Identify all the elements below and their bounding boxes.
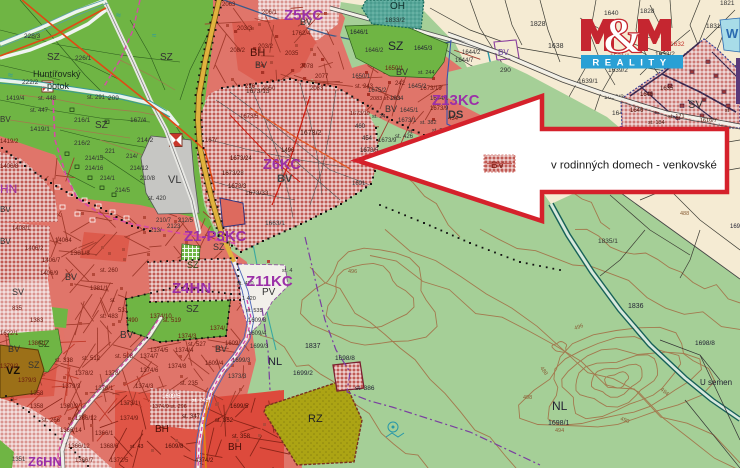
svg-text:BV: BV <box>120 330 134 341</box>
svg-text:1645/3: 1645/3 <box>414 46 433 52</box>
svg-text:1646: 1646 <box>640 92 654 98</box>
svg-text:BV: BV <box>0 205 11 214</box>
svg-text:REALITY: REALITY <box>592 58 671 69</box>
svg-text:488: 488 <box>680 211 689 217</box>
svg-text:Z13KC: Z13KC <box>432 92 480 109</box>
svg-text:st. 358: st. 358 <box>232 434 251 440</box>
svg-text:BV: BV <box>385 104 397 114</box>
svg-text:st. 338: st. 338 <box>55 358 74 364</box>
svg-text:1374/5: 1374/5 <box>150 348 169 354</box>
svg-text:221: 221 <box>105 149 116 155</box>
svg-text:1406/8: 1406/8 <box>0 164 19 170</box>
svg-text:1673/9: 1673/9 <box>378 138 397 144</box>
svg-text:RZ: RZ <box>308 413 323 425</box>
svg-text:W: W <box>726 26 739 41</box>
svg-text:st. 171: st. 171 <box>668 114 685 120</box>
svg-text:st. 386: st. 386 <box>355 385 375 392</box>
svg-text:st. 426: st. 426 <box>395 134 414 140</box>
svg-text:1831: 1831 <box>706 23 721 30</box>
svg-text:1374/3: 1374/3 <box>135 384 154 390</box>
svg-text:1646/1: 1646/1 <box>350 30 369 36</box>
svg-text:1381/1: 1381/1 <box>90 286 109 292</box>
svg-text:1673/5: 1673/5 <box>240 114 259 120</box>
svg-text:st. 527: st. 527 <box>188 342 207 348</box>
svg-text:st. 43: st. 43 <box>130 444 143 450</box>
svg-text:1366/7: 1366/7 <box>75 458 94 464</box>
svg-text:1835/1: 1835/1 <box>598 238 618 245</box>
svg-text:st. 24: st. 24 <box>372 114 385 120</box>
svg-text:1351: 1351 <box>12 457 26 463</box>
svg-text:1366/1: 1366/1 <box>95 431 114 437</box>
svg-text:1378/: 1378/ <box>105 371 120 377</box>
svg-text:1358: 1358 <box>30 404 44 410</box>
svg-text:460: 460 <box>355 124 366 130</box>
svg-text:BV: BV <box>277 173 293 185</box>
svg-text:SZ: SZ <box>388 39 403 53</box>
svg-text:226/1: 226/1 <box>75 55 92 62</box>
svg-text:st. 347: st. 347 <box>182 414 201 420</box>
svg-text:1379/2: 1379/2 <box>0 364 19 370</box>
svg-text:1698/8: 1698/8 <box>335 355 355 362</box>
svg-text:1645/1: 1645/1 <box>400 108 419 114</box>
svg-text:SZ: SZ <box>187 260 199 270</box>
svg-text:BH: BH <box>155 424 169 435</box>
svg-text:216/1: 216/1 <box>74 117 91 124</box>
svg-text:Z11KC: Z11KC <box>246 273 293 290</box>
svg-text:st. 508: st. 508 <box>115 354 134 360</box>
svg-text:1837: 1837 <box>305 343 321 350</box>
svg-text:1419/1: 1419/1 <box>30 126 50 133</box>
svg-text:1675/2: 1675/2 <box>368 88 387 94</box>
svg-text:SV: SV <box>12 287 24 297</box>
svg-text:Z6KC: Z6KC <box>263 157 301 173</box>
svg-text:1374/3: 1374/3 <box>178 334 197 340</box>
svg-text:214/12: 214/12 <box>130 166 149 172</box>
svg-text:st. 266: st. 266 <box>42 418 61 424</box>
svg-text:≈: ≈ <box>8 70 13 80</box>
svg-text:1673/1: 1673/1 <box>398 118 417 124</box>
svg-text:1496: 1496 <box>281 148 295 154</box>
svg-text:HN: HN <box>0 182 17 196</box>
svg-text:498: 498 <box>523 395 532 401</box>
svg-text:Z5KC: Z5KC <box>284 7 323 24</box>
svg-text:1374/7: 1374/7 <box>140 354 159 360</box>
svg-text:1699/3: 1699/3 <box>232 358 251 364</box>
svg-text:1698/8: 1698/8 <box>695 340 715 347</box>
svg-text:1616/7: 1616/7 <box>700 118 717 124</box>
svg-text:1408/1: 1408/1 <box>12 226 31 232</box>
svg-text:1698: 1698 <box>730 224 740 230</box>
svg-text:1378/1: 1378/1 <box>95 386 114 392</box>
svg-text:st. 244: st. 244 <box>418 70 435 76</box>
svg-text:214/5: 214/5 <box>115 188 131 194</box>
svg-text:Z4HN: Z4HN <box>172 280 211 297</box>
svg-text:1663/1: 1663/1 <box>265 220 285 227</box>
svg-text:1644/2: 1644/2 <box>462 50 481 56</box>
svg-text:1419/2: 1419/2 <box>0 139 19 145</box>
svg-text:1406/9: 1406/9 <box>40 271 59 277</box>
svg-text:1673/13: 1673/13 <box>246 88 270 95</box>
svg-text:1374/4: 1374/4 <box>175 348 194 354</box>
svg-text:st. 519: st. 519 <box>163 318 182 324</box>
svg-text:SZ: SZ <box>95 120 108 131</box>
svg-text:st. 447: st. 447 <box>30 108 49 114</box>
svg-text:1374/: 1374/ <box>210 326 225 332</box>
svg-text:209: 209 <box>108 95 119 102</box>
svg-text:496: 496 <box>348 269 357 275</box>
svg-text:1699/5: 1699/5 <box>230 404 249 410</box>
svg-text:1360/2: 1360/2 <box>60 404 79 410</box>
svg-text:1698/1: 1698/1 <box>548 420 570 427</box>
svg-text:1609/4: 1609/4 <box>248 331 267 337</box>
svg-text:st. 535: st. 535 <box>246 308 263 314</box>
svg-text:494: 494 <box>555 428 564 434</box>
svg-text:1366/14: 1366/14 <box>60 428 82 434</box>
svg-text:1373/3: 1373/3 <box>228 374 247 380</box>
svg-text:st. 248: st. 248 <box>192 398 209 404</box>
svg-text:BV: BV <box>0 237 11 246</box>
svg-text:1699/2: 1699/2 <box>293 370 313 377</box>
svg-text:SZ: SZ <box>160 52 173 63</box>
svg-text:DS: DS <box>448 109 463 121</box>
svg-text:1828: 1828 <box>530 21 546 28</box>
svg-text:st. 420: st. 420 <box>148 196 167 202</box>
svg-text:BV: BV <box>491 160 505 171</box>
svg-text:14064: 14064 <box>55 238 72 244</box>
svg-text:BV: BV <box>65 272 77 282</box>
svg-text:SV: SV <box>688 99 703 111</box>
svg-text:st. 291: st. 291 <box>87 95 106 101</box>
svg-text:1374/6: 1374/6 <box>140 368 159 374</box>
svg-text:228/3: 228/3 <box>24 33 41 40</box>
svg-text:NL: NL <box>268 356 282 368</box>
svg-text:1374/9: 1374/9 <box>120 416 139 422</box>
svg-text:242: 242 <box>395 81 406 87</box>
svg-text:1634: 1634 <box>390 96 404 102</box>
svg-text:210/8: 210/8 <box>140 176 156 182</box>
svg-text:1673/3: 1673/3 <box>228 184 247 190</box>
svg-text:2077: 2077 <box>315 74 329 80</box>
svg-text:4374/2: 4374/2 <box>195 458 214 464</box>
svg-text:BV: BV <box>396 67 408 77</box>
svg-text:BH: BH <box>250 47 265 59</box>
svg-text:214/15: 214/15 <box>85 156 104 162</box>
svg-text:st. 260: st. 260 <box>100 268 119 274</box>
svg-text:290: 290 <box>500 67 511 74</box>
svg-text:st. 235: st. 235 <box>180 381 199 387</box>
svg-text:potok: potok <box>47 81 70 91</box>
svg-text:531: 531 <box>118 308 129 314</box>
svg-text:1358: 1358 <box>30 391 44 397</box>
svg-text:Z1-P3KC: Z1-P3KC <box>184 228 247 245</box>
svg-text:1366/12: 1366/12 <box>75 416 97 422</box>
svg-text:v rodinných domech - venkovské: v rodinných domech - venkovské <box>551 160 717 172</box>
svg-text:2035: 2035 <box>285 51 299 57</box>
svg-text:1 420: 1 420 <box>242 296 256 302</box>
svg-text:1373/1: 1373/1 <box>120 401 139 407</box>
svg-text:1609/: 1609/ <box>225 341 240 347</box>
svg-text:1609/8: 1609/8 <box>165 444 184 450</box>
svg-text:st. 184: st. 184 <box>648 120 665 126</box>
svg-text:&: & <box>602 7 644 63</box>
svg-text:VL: VL <box>168 174 181 186</box>
svg-text:1635: 1635 <box>660 86 674 92</box>
svg-text:SZ: SZ <box>47 52 60 63</box>
svg-text:1379/3: 1379/3 <box>18 378 37 384</box>
svg-text:SZ: SZ <box>38 339 50 349</box>
svg-text:BV: BV <box>8 344 20 354</box>
svg-text:214/: 214/ <box>126 154 138 160</box>
svg-text:1419/4: 1419/4 <box>6 96 25 102</box>
svg-text:1673/19: 1673/19 <box>350 111 370 117</box>
svg-text:1673/28: 1673/28 <box>222 171 244 177</box>
svg-text:1632: 1632 <box>670 41 685 48</box>
svg-text:1406/7: 1406/7 <box>42 258 61 264</box>
svg-text:1368/6: 1368/6 <box>100 444 119 450</box>
svg-text:167/: 167/ <box>205 138 217 144</box>
svg-text:BV: BV <box>498 48 509 57</box>
svg-text:208/2: 208/2 <box>230 48 246 54</box>
svg-text:2083: 2083 <box>310 86 324 92</box>
svg-text:1836: 1836 <box>628 303 644 310</box>
svg-text:Z6HN: Z6HN <box>28 454 62 468</box>
svg-text:1673/2: 1673/2 <box>300 130 322 137</box>
svg-text:1372/5: 1372/5 <box>110 458 129 464</box>
svg-text:1691: 1691 <box>352 181 366 187</box>
svg-text:st. 483: st. 483 <box>100 314 119 320</box>
svg-text:≈: ≈ <box>152 31 157 40</box>
svg-text:1366/12: 1366/12 <box>68 444 90 450</box>
svg-text:1833/2: 1833/2 <box>385 17 405 24</box>
svg-text:1383: 1383 <box>30 318 44 324</box>
svg-text:1406/2: 1406/2 <box>25 246 44 252</box>
svg-text:1622/1: 1622/1 <box>0 331 19 337</box>
svg-text:206/1: 206/1 <box>262 10 278 16</box>
svg-text:st. 448: st. 448 <box>38 96 57 102</box>
svg-text:≈: ≈ <box>116 10 121 20</box>
svg-text:1699/3: 1699/3 <box>250 344 269 350</box>
svg-text:BH: BH <box>228 442 242 453</box>
svg-text:1645/2: 1645/2 <box>408 84 427 90</box>
svg-text:NL: NL <box>552 399 568 413</box>
svg-text:212/5: 212/5 <box>178 218 194 224</box>
svg-text:213/: 213/ <box>150 228 162 234</box>
svg-text:2123: 2123 <box>167 224 181 230</box>
svg-text:2078: 2078 <box>300 64 314 70</box>
svg-text:st: st <box>110 298 115 304</box>
svg-text:1650/1: 1650/1 <box>352 74 371 80</box>
svg-text:454: 454 <box>362 136 373 142</box>
svg-text:st. 382: st. 382 <box>420 120 437 126</box>
svg-text:1609/4: 1609/4 <box>205 361 224 367</box>
svg-text:SZ: SZ <box>186 304 199 315</box>
svg-text:1379/3: 1379/3 <box>62 384 81 390</box>
svg-text:1762/4: 1762/4 <box>292 31 311 37</box>
svg-text:Huntířovský: Huntířovský <box>33 69 81 79</box>
svg-text:1381/3: 1381/3 <box>70 250 90 257</box>
svg-text:1374/8: 1374/8 <box>168 364 187 370</box>
svg-text:1821: 1821 <box>720 0 735 7</box>
svg-text:214/16: 214/16 <box>85 166 104 172</box>
svg-text:2063: 2063 <box>222 2 236 8</box>
svg-text:1644/7: 1644/7 <box>455 58 474 64</box>
svg-text:222/2: 222/2 <box>22 79 39 86</box>
svg-text:BV: BV <box>0 115 11 124</box>
svg-text:OH: OH <box>390 1 405 12</box>
svg-text:214/2: 214/2 <box>137 137 154 144</box>
svg-text:SZ: SZ <box>28 360 40 370</box>
svg-text:835: 835 <box>12 306 23 312</box>
svg-text:1638: 1638 <box>548 43 564 50</box>
svg-text:1374/9 st. 296: 1374/9 st. 296 <box>152 404 187 410</box>
svg-text:490: 490 <box>128 318 139 324</box>
svg-text:1378/2: 1378/2 <box>75 371 94 377</box>
svg-text:1646: 1646 <box>630 108 644 114</box>
svg-text:214/1: 214/1 <box>100 176 116 182</box>
svg-text:167/4: 167/4 <box>130 117 147 124</box>
svg-text:st: st <box>725 108 730 114</box>
svg-text:203/3: 203/3 <box>237 26 253 32</box>
svg-text:1673/24: 1673/24 <box>230 156 252 162</box>
svg-text:st. 352: st. 352 <box>215 418 234 424</box>
svg-text:1646/2: 1646/2 <box>365 48 384 54</box>
svg-text:1609/3: 1609/3 <box>248 318 267 324</box>
svg-text:st. 512: st. 512 <box>82 356 101 362</box>
svg-text:U semen: U semen <box>700 378 732 387</box>
svg-text:1609/5: 1609/5 <box>162 394 181 400</box>
svg-text:1673/33: 1673/33 <box>245 190 269 197</box>
svg-text:BV: BV <box>255 60 267 70</box>
svg-text:216/2: 216/2 <box>74 140 91 147</box>
